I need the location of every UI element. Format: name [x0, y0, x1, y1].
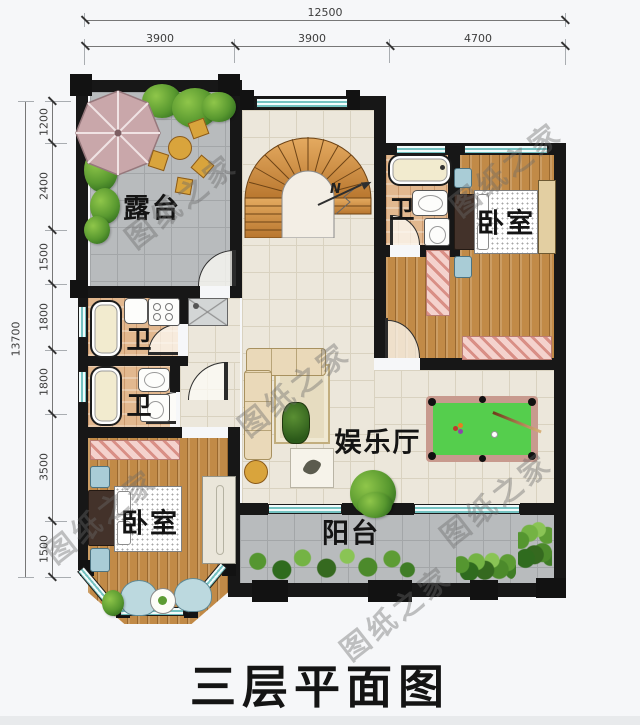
pocket — [428, 452, 436, 460]
window-bedroom-ur — [464, 145, 548, 154]
faucet-icon — [440, 165, 445, 170]
pocket — [479, 396, 486, 403]
north-arrow-head — [361, 178, 373, 189]
billiard-ball — [458, 423, 463, 428]
nightstand — [90, 466, 110, 488]
bedroom-lower-left-label: 卧室 — [121, 502, 179, 541]
wall-bath-ll-right — [170, 366, 180, 392]
bay-chair — [174, 578, 212, 612]
dim-ext — [45, 284, 67, 285]
wall-bath-ur-bottom-a — [374, 245, 390, 257]
dim-seg-top-2: 4700 — [464, 32, 492, 45]
window-balcony-right — [414, 504, 520, 514]
pocket — [528, 398, 536, 406]
billiard-ball — [458, 429, 463, 434]
pocket — [528, 452, 536, 460]
side-table — [244, 460, 268, 484]
entertainment-hall-label: 娱乐厅 — [335, 421, 422, 460]
bedroom-upper-right-label: 卧室 — [477, 202, 535, 241]
wardrobe — [538, 180, 556, 254]
pier — [470, 580, 498, 600]
north-arrow: N — [318, 180, 374, 214]
pool-table — [426, 396, 538, 462]
burner — [165, 313, 173, 321]
cue-stick — [493, 411, 542, 433]
window-bathroom-ur — [396, 145, 446, 154]
wall-balcony-top-a — [240, 503, 268, 515]
dim-seg-left-4: 1800 — [38, 368, 51, 396]
bed-headboard — [454, 194, 476, 250]
dim-ext — [18, 101, 34, 102]
nightstand — [90, 548, 110, 572]
dim-seg-top-1: 3900 — [298, 32, 326, 45]
dim-seg-left-6: 1500 — [38, 535, 51, 563]
dim-ext — [45, 521, 67, 522]
plant — [202, 92, 236, 122]
dim-ext — [45, 230, 67, 231]
page-title: 三层平面图 — [190, 651, 450, 717]
window-stair-top — [256, 98, 348, 108]
nightstand — [454, 256, 472, 278]
mat-motif — [302, 457, 322, 478]
plant — [102, 590, 124, 616]
bathtub — [90, 366, 122, 426]
toilet-bowl — [429, 226, 446, 244]
rug — [426, 250, 450, 316]
dim-seg-left-5: 3500 — [38, 453, 51, 481]
bay-table — [150, 588, 176, 614]
dim-seg-left-1: 2400 — [38, 172, 51, 200]
dim-ext — [45, 577, 71, 578]
pocket — [428, 398, 436, 406]
wall-bedroom-ll-top — [78, 427, 182, 438]
floor-mat — [290, 448, 334, 488]
dim-total-left: 13700 — [10, 322, 23, 357]
dim-ext — [45, 101, 71, 102]
window-bathroom-lu — [78, 306, 87, 338]
dim-ext — [18, 577, 34, 578]
pier — [368, 580, 412, 602]
dim-seg-left-2: 1500 — [38, 243, 51, 271]
wall-left-lower — [78, 428, 88, 570]
door-terrace-leaf — [232, 250, 236, 286]
dim-ext — [45, 414, 67, 415]
wardrobe-mirror — [216, 485, 224, 555]
dim-line — [52, 101, 53, 577]
door-bedroom-ur-leaf — [385, 318, 388, 358]
dim-line — [25, 101, 26, 577]
shower-stall — [188, 298, 228, 326]
plant — [84, 216, 110, 244]
dim-line — [85, 20, 566, 21]
terrace-table — [168, 136, 192, 160]
pier — [70, 280, 88, 298]
wardrobe — [202, 476, 236, 564]
pocket — [479, 455, 486, 462]
balcony-hedge — [518, 508, 552, 580]
toilet — [424, 218, 450, 246]
potted-plant — [282, 402, 310, 444]
cue-ball — [491, 431, 498, 438]
terrace-label: 露台 — [123, 187, 181, 226]
dim-seg-top-0: 3900 — [146, 32, 174, 45]
door-bedroom-ll-leaf — [224, 362, 228, 400]
sink-basin — [418, 195, 443, 212]
pier — [346, 90, 360, 110]
floorplan-canvas: N — [0, 0, 640, 725]
balcony-label: 阳台 — [322, 512, 380, 551]
balcony-hedge — [244, 546, 416, 580]
rug — [90, 440, 180, 460]
dim-ext — [45, 143, 67, 144]
dim-ext — [45, 350, 67, 351]
bathtub — [388, 154, 452, 186]
shower-head-icon — [193, 303, 199, 309]
burner — [165, 303, 173, 311]
bathroom-left-upper-label: 卫 — [126, 320, 153, 356]
dim-seg-left-3: 1800 — [38, 303, 51, 331]
north-label: N — [330, 182, 341, 197]
balcony-hedge — [456, 552, 516, 580]
dim-ext — [565, 39, 566, 65]
bottom-strip — [0, 716, 640, 725]
dim-total-top: 12500 — [308, 6, 343, 19]
window-bathroom-ll — [78, 371, 87, 403]
bathroom-upper-right-label: 卫 — [389, 190, 416, 226]
table-plant-icon — [158, 596, 167, 605]
sofa-left — [244, 370, 272, 460]
rug — [462, 336, 552, 360]
dim-seg-left-0: 1200 — [38, 108, 51, 136]
pier — [536, 578, 566, 598]
bathtub — [90, 300, 122, 358]
bathroom-left-lower-label: 卫 — [126, 386, 153, 422]
wall-terrace-bottom-a — [76, 286, 200, 298]
nightstand — [454, 168, 472, 188]
bed-headboard — [88, 490, 116, 546]
pier — [252, 580, 288, 602]
pier — [240, 90, 254, 110]
burner — [153, 303, 161, 311]
staircase — [242, 110, 374, 238]
dim-line — [85, 46, 566, 47]
burner — [153, 313, 161, 321]
sink — [412, 190, 448, 216]
